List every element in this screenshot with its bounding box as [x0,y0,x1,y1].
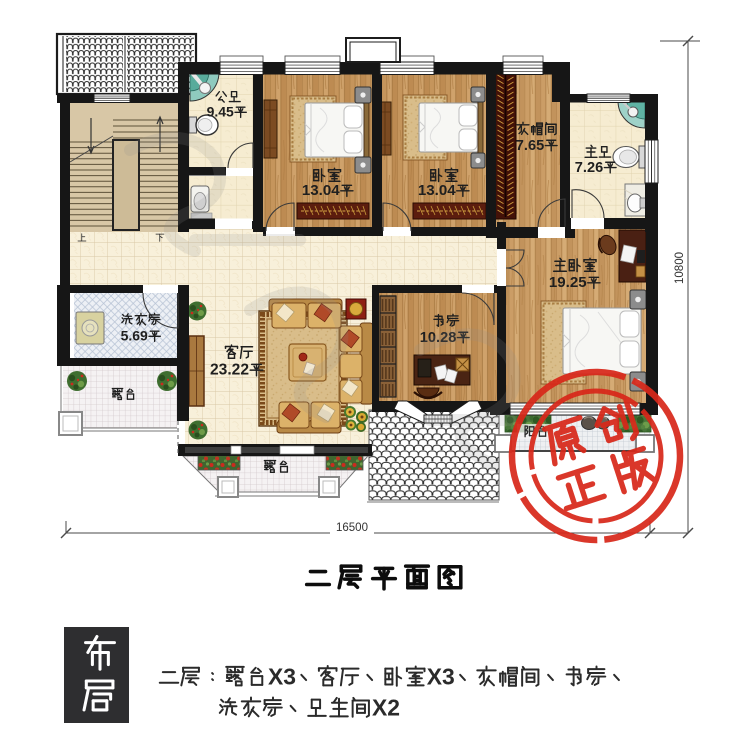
svg-text:7.26: 7.26 [575,160,603,176]
svg-text:13.04: 13.04 [302,182,340,199]
svg-text:16500: 16500 [336,522,368,534]
svg-text:23.22: 23.22 [210,362,249,379]
svg-text:5.69: 5.69 [121,327,148,343]
svg-text:X3: X3 [268,664,296,690]
svg-text:7.65: 7.65 [516,138,544,154]
svg-text:19.25: 19.25 [549,274,587,291]
svg-text:13.04: 13.04 [418,182,456,199]
svg-text:X3: X3 [427,664,455,690]
svg-text:X2: X2 [372,695,400,721]
svg-text:9.45: 9.45 [207,103,234,119]
svg-text:10800: 10800 [674,252,686,284]
